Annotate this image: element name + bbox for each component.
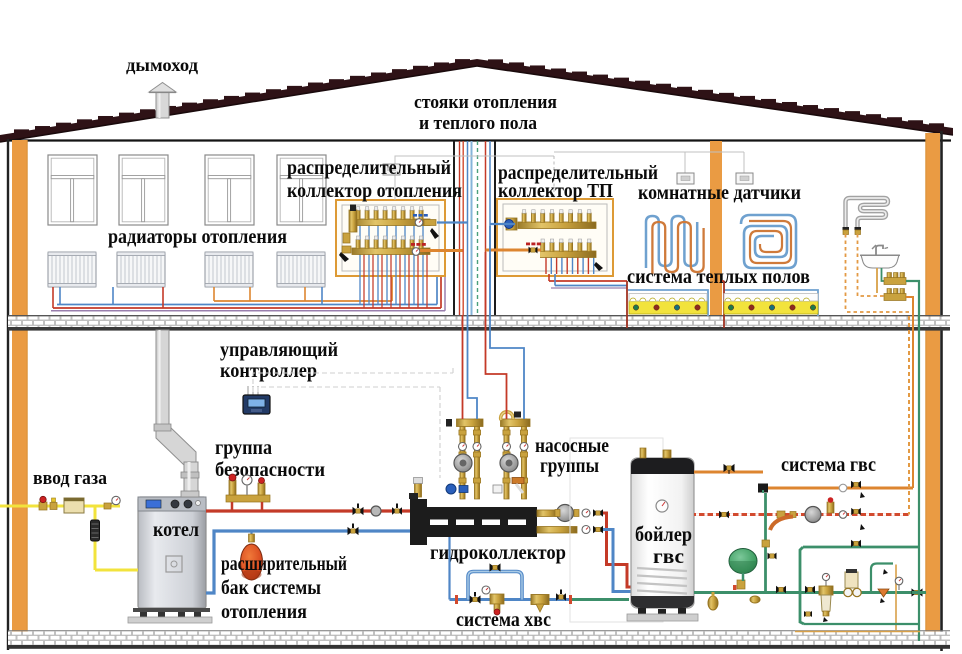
svg-text:система хвс: система хвс — [456, 610, 551, 631]
svg-text:отопления: отопления — [221, 601, 307, 623]
svg-text:коллектор отопления: коллектор отопления — [287, 180, 462, 202]
svg-text:система теплых полов: система теплых полов — [627, 266, 810, 288]
svg-text:система гвс: система гвс — [781, 454, 876, 476]
svg-text:бак системы: бак системы — [221, 577, 321, 599]
svg-text:котел: котел — [153, 520, 199, 541]
svg-text:бойлер: бойлер — [635, 522, 692, 546]
svg-text:коллектор ТП: коллектор ТП — [498, 180, 613, 202]
svg-text:радиаторы отопления: радиаторы отопления — [108, 226, 287, 248]
svg-text:контроллер: контроллер — [220, 360, 317, 382]
svg-text:насосные: насосные — [535, 436, 609, 457]
svg-text:управляющий: управляющий — [220, 339, 338, 361]
svg-text:комнатные датчики: комнатные датчики — [638, 182, 801, 204]
svg-text:распределительный: распределительный — [287, 157, 451, 179]
svg-text:дымоход: дымоход — [126, 55, 198, 75]
svg-text:группа: группа — [215, 438, 272, 459]
svg-text:стояки отопления: стояки отопления — [414, 93, 557, 113]
svg-text:и теплого пола: и теплого пола — [419, 114, 537, 134]
svg-text:расширительный: расширительный — [221, 553, 347, 575]
svg-text:гвс: гвс — [653, 544, 684, 568]
svg-text:ввод газа: ввод газа — [33, 469, 107, 489]
